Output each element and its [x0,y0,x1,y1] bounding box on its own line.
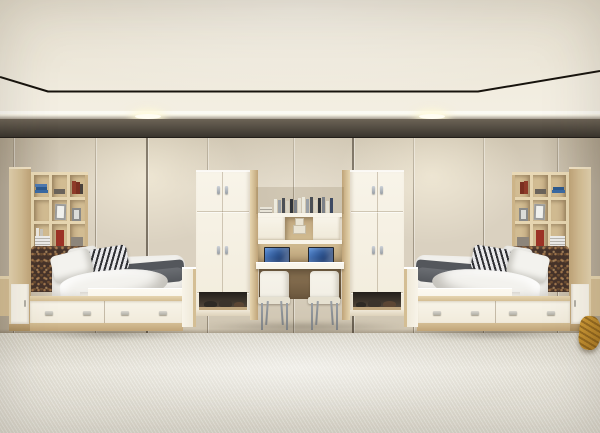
chair-backrest [310,271,339,298]
chair-leg [330,301,334,325]
shoe [368,300,381,307]
red-box [536,230,544,246]
storage-box [295,218,304,226]
door-seam [351,211,403,212]
chair-leg [265,301,269,325]
picture-frame [519,208,528,221]
drawer-seam [104,301,105,323]
wardrobe-plinth [196,310,250,316]
wardrobe-handle [217,246,220,254]
wardrobe-right [342,170,404,328]
shelf-cell [34,200,49,222]
bed-plinth [417,323,570,331]
drawer-handle [547,311,555,315]
shelf-cell [551,175,566,197]
shelf-object [517,237,529,246]
picture-frame [55,204,67,220]
underbed-drawers [30,301,183,323]
chair-backrest [260,271,289,298]
wardrobe-handle [380,186,383,194]
blue-book [553,187,564,190]
picture-frame [72,208,81,221]
bed-side-tower [569,167,591,331]
chair-leg [286,303,288,330]
shoe [356,302,366,307]
desk-top [256,262,344,269]
headboard-bookshelf [512,172,569,250]
magazine-stack [35,236,50,246]
wardrobe-handle [372,246,375,254]
shoe-niche [199,292,247,310]
red-book [520,182,524,194]
wardrobe-handle [372,186,375,194]
cabinet-handle [574,300,576,307]
red-box [56,230,64,246]
drawer-seam [495,301,496,323]
laptop-right [308,247,334,263]
chair-right [308,271,342,331]
laptop-left [264,247,290,263]
picture-frame [534,204,546,220]
bed-group-right [404,0,600,433]
shelf-object [54,189,65,194]
footboard [182,267,196,327]
hutch-door-right [313,217,340,240]
shelf-object [71,237,83,246]
footboard [404,267,418,327]
shoe [219,300,232,307]
wardrobe-handle [225,186,228,194]
door-seam [377,172,378,292]
tower-cabinet-door [11,284,29,324]
wardrobe-handle [225,246,228,254]
blue-book [35,184,47,187]
blue-book [36,187,47,190]
drawer-handle [121,311,129,315]
drawer-handle [83,311,91,315]
book-row [274,197,301,213]
shoe [204,301,217,307]
door-seam [222,172,223,292]
chair-leg [261,303,263,330]
hutch-open-cubby [285,217,313,240]
drawer-handle [159,311,167,315]
underbed-drawers [417,301,570,323]
chair-leg [311,303,313,330]
yellow-throw-fabric [577,315,600,351]
magazine-stack [550,236,565,246]
bed-group-left [0,0,196,433]
blue-book [552,190,565,193]
bed-side-tower [9,167,31,331]
wardrobe-handle [217,186,220,194]
hutch-door-left [258,217,285,240]
wardrobe-plinth [350,310,404,316]
nightstand [0,276,9,316]
door-seam [197,211,249,212]
headboard-bookshelf [31,172,88,250]
drawer-handle [471,311,479,315]
drawer-handle [433,311,441,315]
chair-leg [315,301,319,325]
chair-leg [280,301,284,325]
chair-left [258,271,292,331]
blue-book [35,190,48,193]
cabinet-handle [24,300,26,307]
shoe [234,302,244,307]
shelf-cell [551,200,566,222]
study-niche [256,196,344,336]
room-render [0,0,600,433]
red-book [524,181,528,194]
drawer-handle [45,311,53,315]
tower-plinth [9,324,31,331]
wardrobe-left [196,170,258,328]
nightstand [591,276,600,316]
chair-leg [336,303,338,330]
storage-box [293,225,306,234]
drawer-handle [509,311,517,315]
shelf-object [535,189,546,194]
dark-book [80,184,83,194]
book-row [302,196,333,213]
bed-plinth [30,323,183,331]
shoe [383,301,396,307]
laptop-screen [309,248,333,262]
laptop-screen [265,248,289,262]
shoe-niche [353,292,401,310]
wardrobe-handle [380,246,383,254]
